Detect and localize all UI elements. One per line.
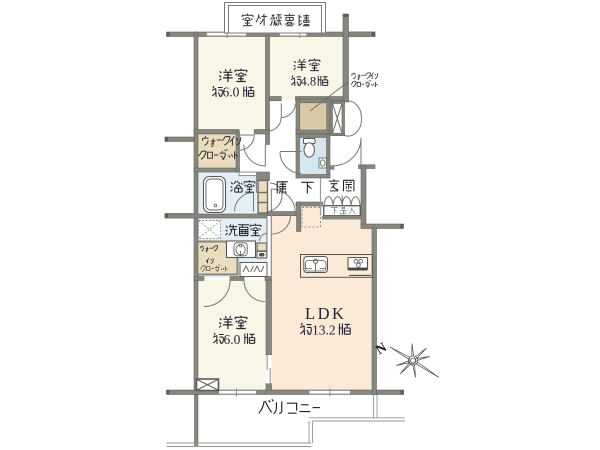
svg-text:6.0: 6.0 [224,332,241,347]
svg-text:13.2: 13.2 [312,323,336,338]
svg-text:6.0: 6.0 [223,85,240,100]
svg-text:4.8: 4.8 [301,75,317,89]
svg-text:LDK: LDK [305,304,346,323]
